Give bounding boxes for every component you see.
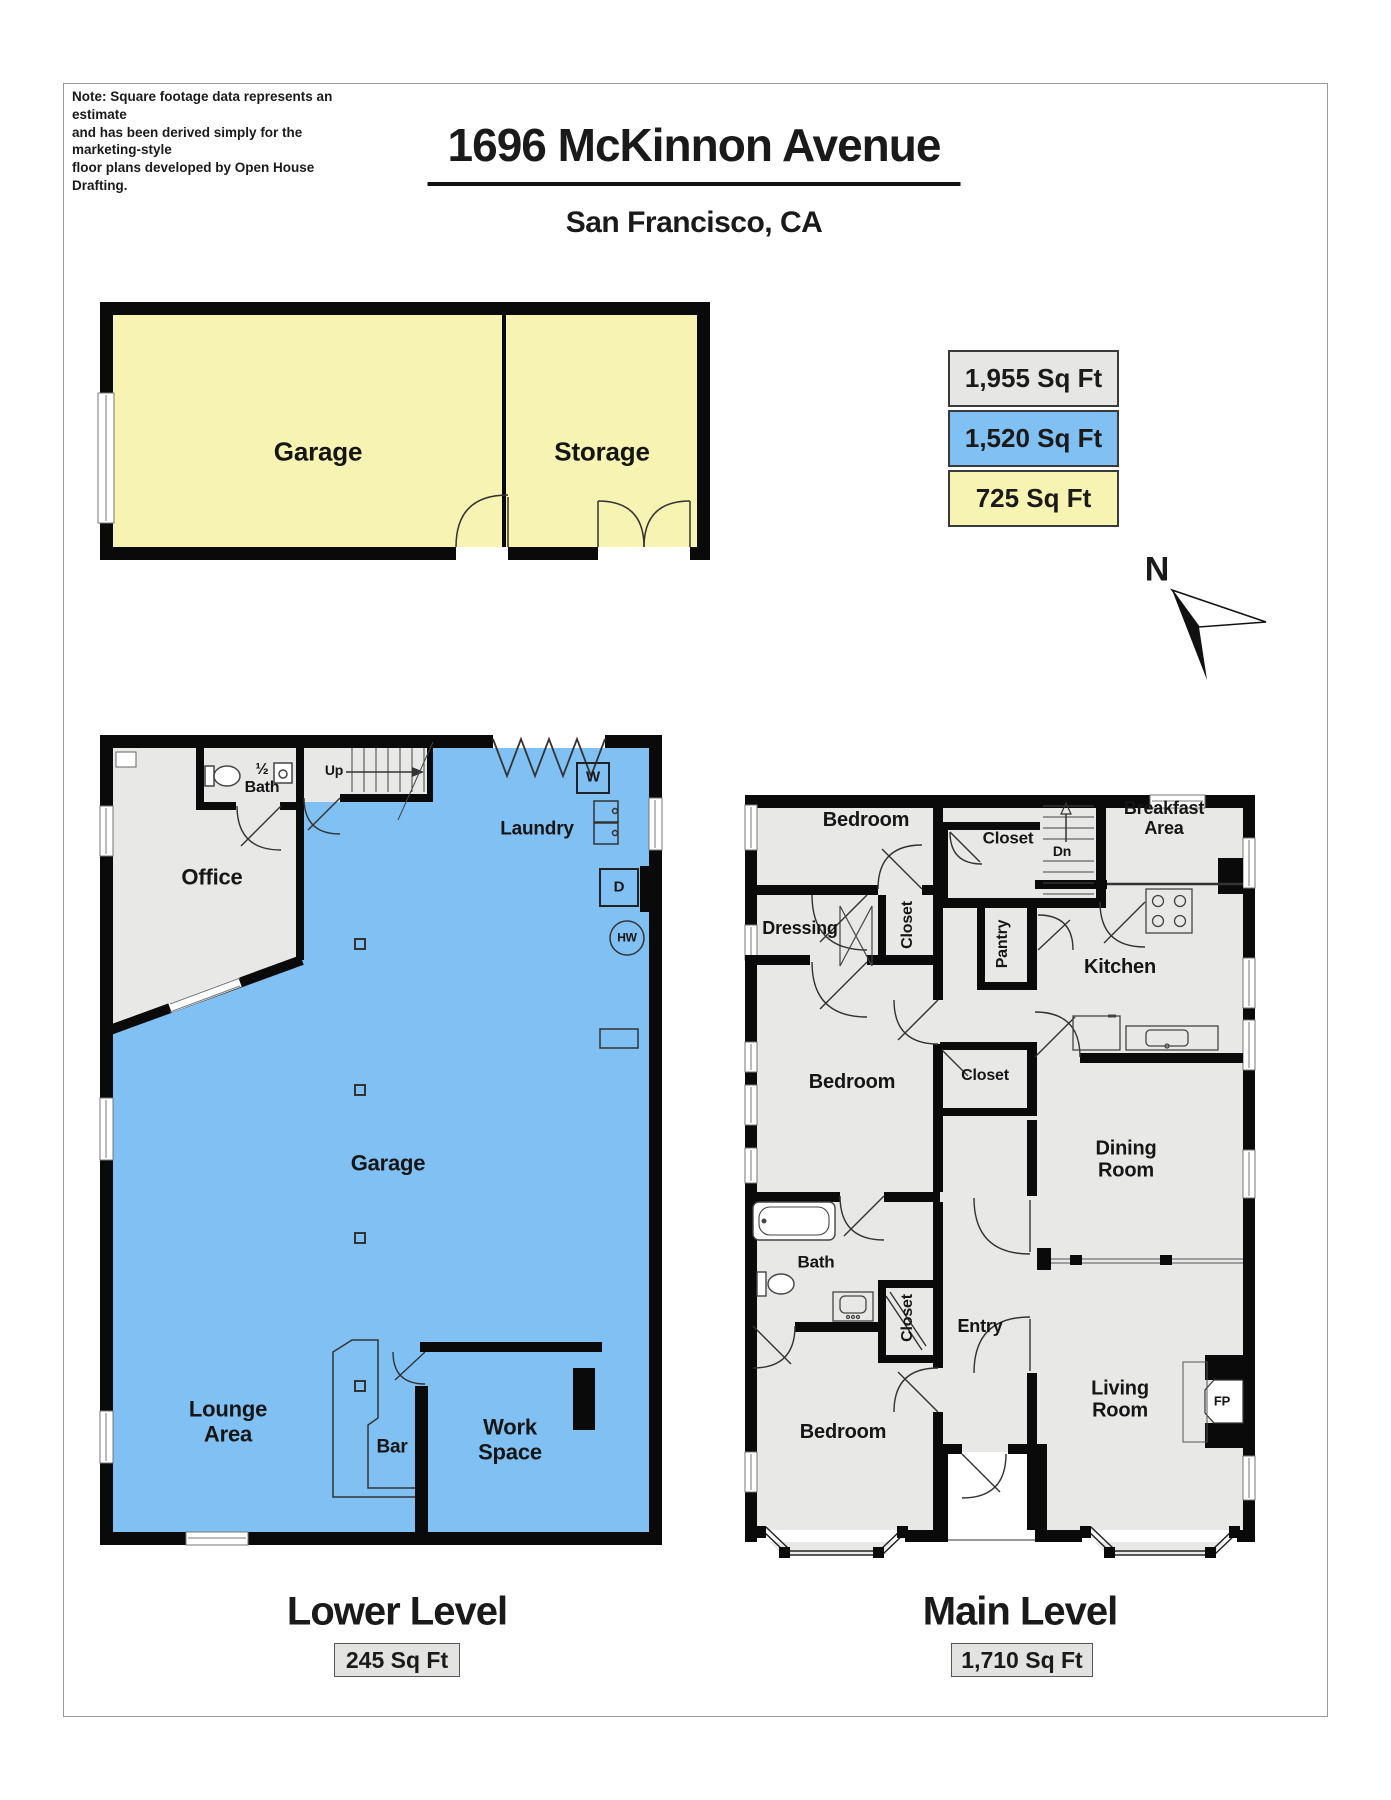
garage-room-label: Garage — [274, 437, 362, 466]
bathtub-icon — [753, 1202, 835, 1240]
bedroom-2-label: Bedroom — [809, 1071, 895, 1093]
kitchen-label: Kitchen — [1084, 956, 1156, 978]
dining-room-label: Dining Room — [1095, 1138, 1156, 1183]
main-level-title: Main Level — [923, 1590, 1118, 1635]
entry-label: Entry — [957, 1316, 1002, 1336]
bedroom-3-label: Bedroom — [800, 1421, 886, 1443]
fireplace-label: FP — [1214, 1395, 1230, 1410]
garage-label: Garage — [351, 1152, 426, 1177]
toilet-icon — [205, 766, 240, 786]
floor-plan-drawing — [0, 0, 1391, 1800]
main-level-sqft: 1,710 Sq Ft — [951, 1643, 1093, 1677]
water-heater-label: HW — [617, 931, 637, 944]
garage-storage-divider-wall — [502, 315, 506, 547]
entry-porch — [946, 1452, 1037, 1542]
storage-room-label: Storage — [554, 437, 649, 466]
bedroom-1-label: Bedroom — [823, 809, 909, 831]
floor-plan-page: Note: Square footage data represents an … — [0, 0, 1391, 1800]
closet-1-label: Closet — [983, 828, 1034, 847]
closet-3-label: Closet — [961, 1067, 1009, 1085]
laundry-label: Laundry — [500, 818, 574, 839]
garage-storage-plan — [98, 302, 710, 560]
lower-level-sqft: 245 Sq Ft — [334, 1643, 460, 1677]
dryer-label: D — [614, 880, 625, 897]
breakfast-area-label: Breakfast Area — [1124, 798, 1204, 838]
office-label: Office — [181, 866, 242, 891]
dn-label: Dn — [1053, 844, 1071, 860]
kitchen-chimney — [1218, 858, 1243, 894]
cabinet-icon — [116, 752, 136, 767]
lower-level-plan — [100, 735, 662, 1545]
lower-level-title: Lower Level — [287, 1590, 507, 1635]
workspace-chimney — [573, 1368, 595, 1430]
garage-window — [98, 393, 114, 523]
pantry-label: Pantry — [994, 920, 1012, 969]
closet-4-label: Closet — [899, 1294, 917, 1342]
lounge-area-label: Lounge Area — [189, 1397, 267, 1446]
washer-label: W — [586, 770, 600, 787]
half-bath-label: ½ Bath — [245, 761, 280, 797]
living-room-label: Living Room — [1091, 1378, 1149, 1423]
work-space-label: Work Space — [478, 1415, 542, 1464]
bar-label: Bar — [376, 1436, 407, 1457]
toilet-icon-main — [757, 1272, 794, 1296]
closet-2-label: Closet — [899, 901, 917, 949]
main-level-plan — [745, 795, 1255, 1558]
stove-icon — [1146, 889, 1192, 933]
bath-label: Bath — [798, 1252, 835, 1271]
compass-arrow-icon — [1172, 590, 1266, 680]
dressing-label: Dressing — [762, 918, 837, 938]
up-label: Up — [325, 763, 343, 779]
